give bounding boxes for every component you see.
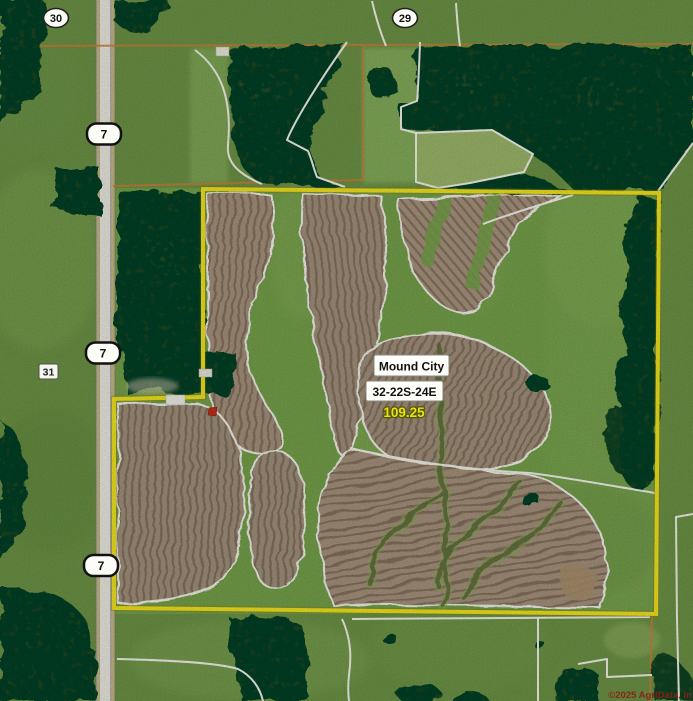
highway-shield-middle: 7 [86,343,120,364]
route-number: 7 [101,128,108,142]
copyright-text: ©2025 AgriData, In [608,690,692,701]
section-label-29: 29 [393,9,418,28]
section-31-text: 31 [43,367,55,379]
parcel-name-text: Mound City [379,360,445,374]
route-number: 7 [100,347,107,361]
parcel-trs-label: 32-22S-24E [366,381,443,401]
section-30-text: 30 [50,13,62,25]
aerial-map: 30 29 31 7 7 7 Mound City 32-22S-24E [0,0,693,701]
section-label-31: 31 [39,364,58,379]
section-29-text: 29 [399,13,411,25]
section-label-30: 30 [44,9,69,28]
parcel-name-label: Mound City [374,355,449,376]
highway-shield-bottom: 7 [84,555,118,576]
highway-shield-top: 7 [87,124,121,145]
route-number: 7 [98,559,105,573]
parcel-acres-text: 109.25 [383,405,425,420]
parcel-trs-text: 32-22S-24E [372,385,436,399]
map-canvas: 30 29 31 7 7 7 Mound City 32-22S-24E [0,0,693,701]
